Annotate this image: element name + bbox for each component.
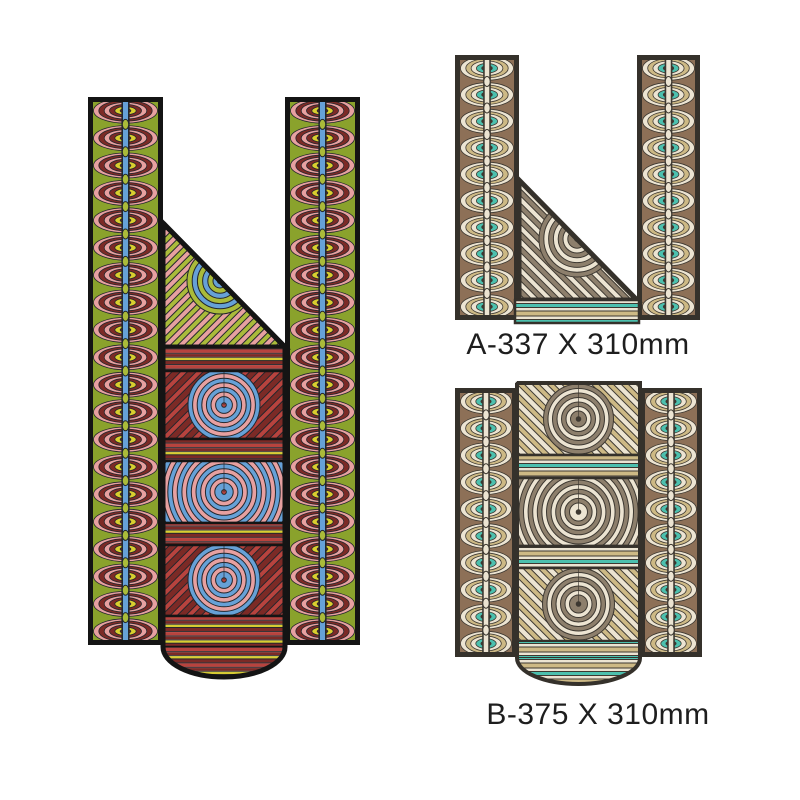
main-neck-design bbox=[88, 97, 360, 679]
main-circle-block-1 bbox=[163, 369, 285, 441]
design-a-right-border-strip bbox=[637, 55, 700, 320]
main-center-panel bbox=[149, 223, 299, 679]
design-b-right-border-strip bbox=[640, 388, 702, 657]
design-a-preview bbox=[455, 55, 700, 323]
design-b-circle-block-3 bbox=[517, 568, 640, 641]
main-circle-block-3 bbox=[163, 544, 285, 616]
main-left-border-strip bbox=[88, 97, 163, 645]
design-a-size-label: A-337 X 310mm bbox=[466, 328, 689, 362]
design-a-left-border-strip bbox=[455, 55, 519, 320]
design-b-left-border-strip bbox=[455, 388, 517, 657]
designs-artwork bbox=[0, 0, 800, 800]
design-b-preview bbox=[455, 383, 702, 686]
main-right-border-strip bbox=[285, 97, 360, 645]
embroidery-design-sheet: A-337 X 310mm B-375 X 310mm bbox=[0, 0, 800, 800]
design-b-size-label: B-375 X 310mm bbox=[486, 698, 709, 732]
design-b-circle-block-1 bbox=[517, 383, 640, 455]
design-b-center-panel bbox=[501, 383, 657, 686]
